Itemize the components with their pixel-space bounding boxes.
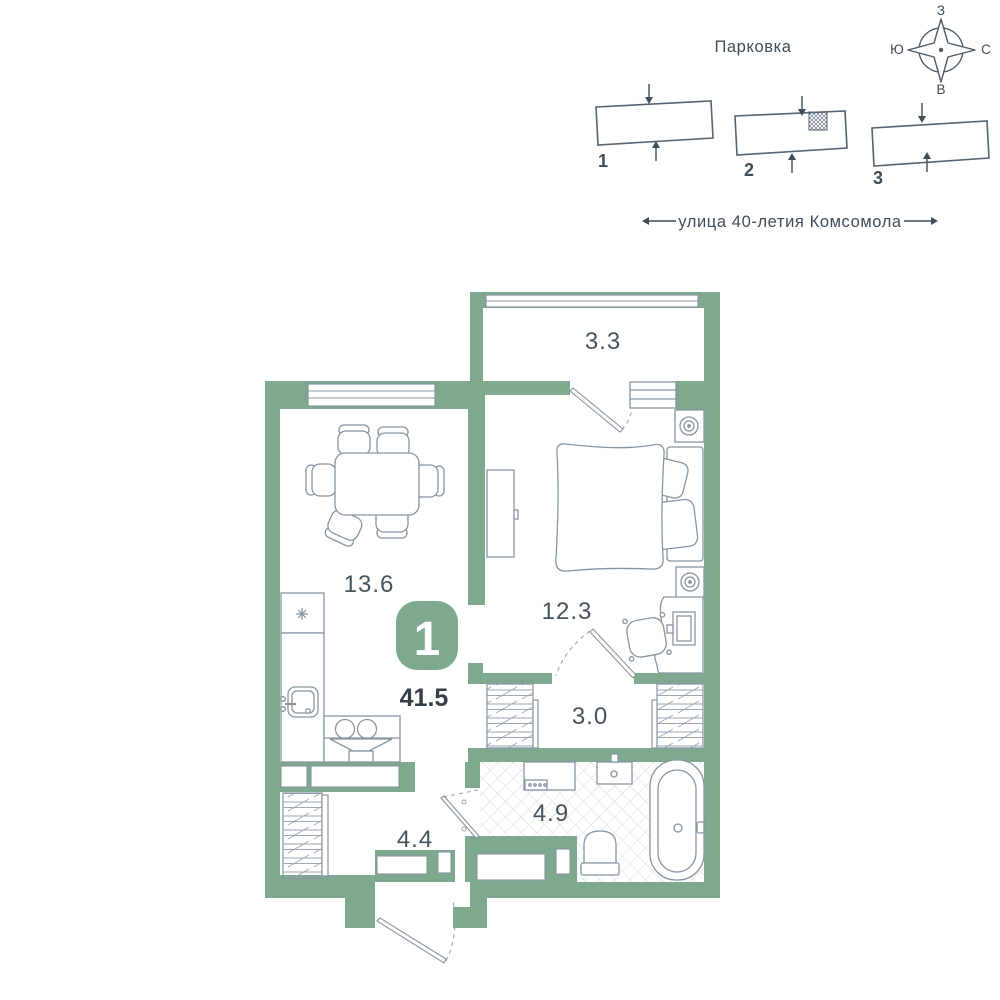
bathroom-door [441,790,479,838]
compass-icon: З Ю С В [890,3,991,97]
wall-hallway-top-left [468,673,552,684]
entry-wardrobe [283,793,322,878]
downlight-stool [675,410,704,442]
apartment-number-badge: 1 [396,601,458,670]
total-area: 41.5 [400,684,449,712]
area-label-bathroom: 4.9 [533,800,569,827]
apartment-number: 1 [414,613,441,666]
building-2-label: 2 [744,160,754,180]
floor-plan: 3.3 13.6 12.3 3.0 4.9 4.4 1 41.5 [265,292,720,963]
arrow-up-icon [788,153,796,173]
bed-blanket [556,444,664,571]
compass-right-label: С [981,42,991,57]
site-plan: Парковка З Ю С В 1 [596,3,991,231]
shaft-niche [281,766,307,787]
chair [306,464,336,496]
wardrobe-rail [652,700,657,748]
door-hinge-dot [462,800,466,804]
bedroom-furniture [487,382,704,673]
dining-set [306,425,444,548]
wall-bathroom-bottom [487,882,720,898]
street-arrow-right-icon [904,217,938,225]
floorplan-page: Парковка З Ю С В 1 [0,0,1000,1000]
area-label-hallway: 3.0 [572,703,608,730]
street-arrow-left-icon [642,217,676,225]
area-label-kitchen-living: 13.6 [344,571,395,598]
shaft-niche [438,852,451,873]
wall-entry-left-jamb [345,875,375,928]
street-label-group: улица 40-летия Комсомола [642,213,938,231]
tv-unit [487,470,514,557]
parking-title: Парковка [714,38,791,56]
wall-balcony-bedroom-block [676,381,720,410]
arrow-down-icon [918,103,926,123]
door-hinge-dot [462,827,466,831]
area-label-bedroom: 12.3 [542,598,593,625]
stove [324,716,400,762]
washing-machine [524,762,575,790]
building-2-hatch-marker [809,112,827,130]
area-label-entry: 4.4 [397,826,433,853]
dresser [630,382,676,408]
entrance-door [377,901,455,963]
wardrobe-rail [533,700,538,748]
arrow-down-icon [645,84,653,104]
wall-left [265,381,280,878]
shaft-niche [477,854,545,880]
toilet [581,831,619,875]
balcony-door [570,388,633,432]
compass-bottom-label: В [936,82,945,97]
wall-hall-nub [468,663,483,674]
hallway-wardrobe-left [487,684,533,748]
wall-kitchen-bedroom-divider [468,395,485,605]
balcony-window [486,295,698,307]
bedroom-door [556,629,636,678]
downlight-stool [676,567,704,598]
wall-hallway-top-right [634,673,720,684]
wall-entry-right-jamb [453,882,487,928]
arrow-up-icon [652,141,660,161]
dining-table [335,453,419,515]
building-3-label: 3 [873,168,883,188]
hallway-wardrobe-right [657,684,703,748]
wall-bathroom-left-upper [465,762,480,788]
wall-right-upper [704,292,720,670]
chair [338,425,370,455]
area-label-balcony: 3.3 [585,328,621,355]
wardrobe-rail [322,795,328,876]
wall-balcony-bedroom [470,381,570,395]
shaft-niche [556,849,570,874]
bathtub [650,760,704,880]
shaft-niche [311,766,399,787]
compass-left-label: Ю [890,42,904,57]
kitchen-counter [281,593,400,762]
street-label: улица 40-летия Комсомола [678,213,902,231]
shaft-niche [377,856,427,874]
parking-building-3: 3 [872,103,989,188]
wall-right-lower [704,670,720,898]
wall-balcony-left [470,292,483,395]
building-1-label: 1 [598,151,608,171]
parking-building-2: 2 [735,96,847,180]
tv-unit-handle [514,510,518,519]
floorplan-canvas: Парковка З Ю С В 1 [0,0,1000,1000]
kitchen-window [308,384,435,406]
compass-top-label: З [937,3,945,18]
parking-building-1: 1 [596,84,713,171]
